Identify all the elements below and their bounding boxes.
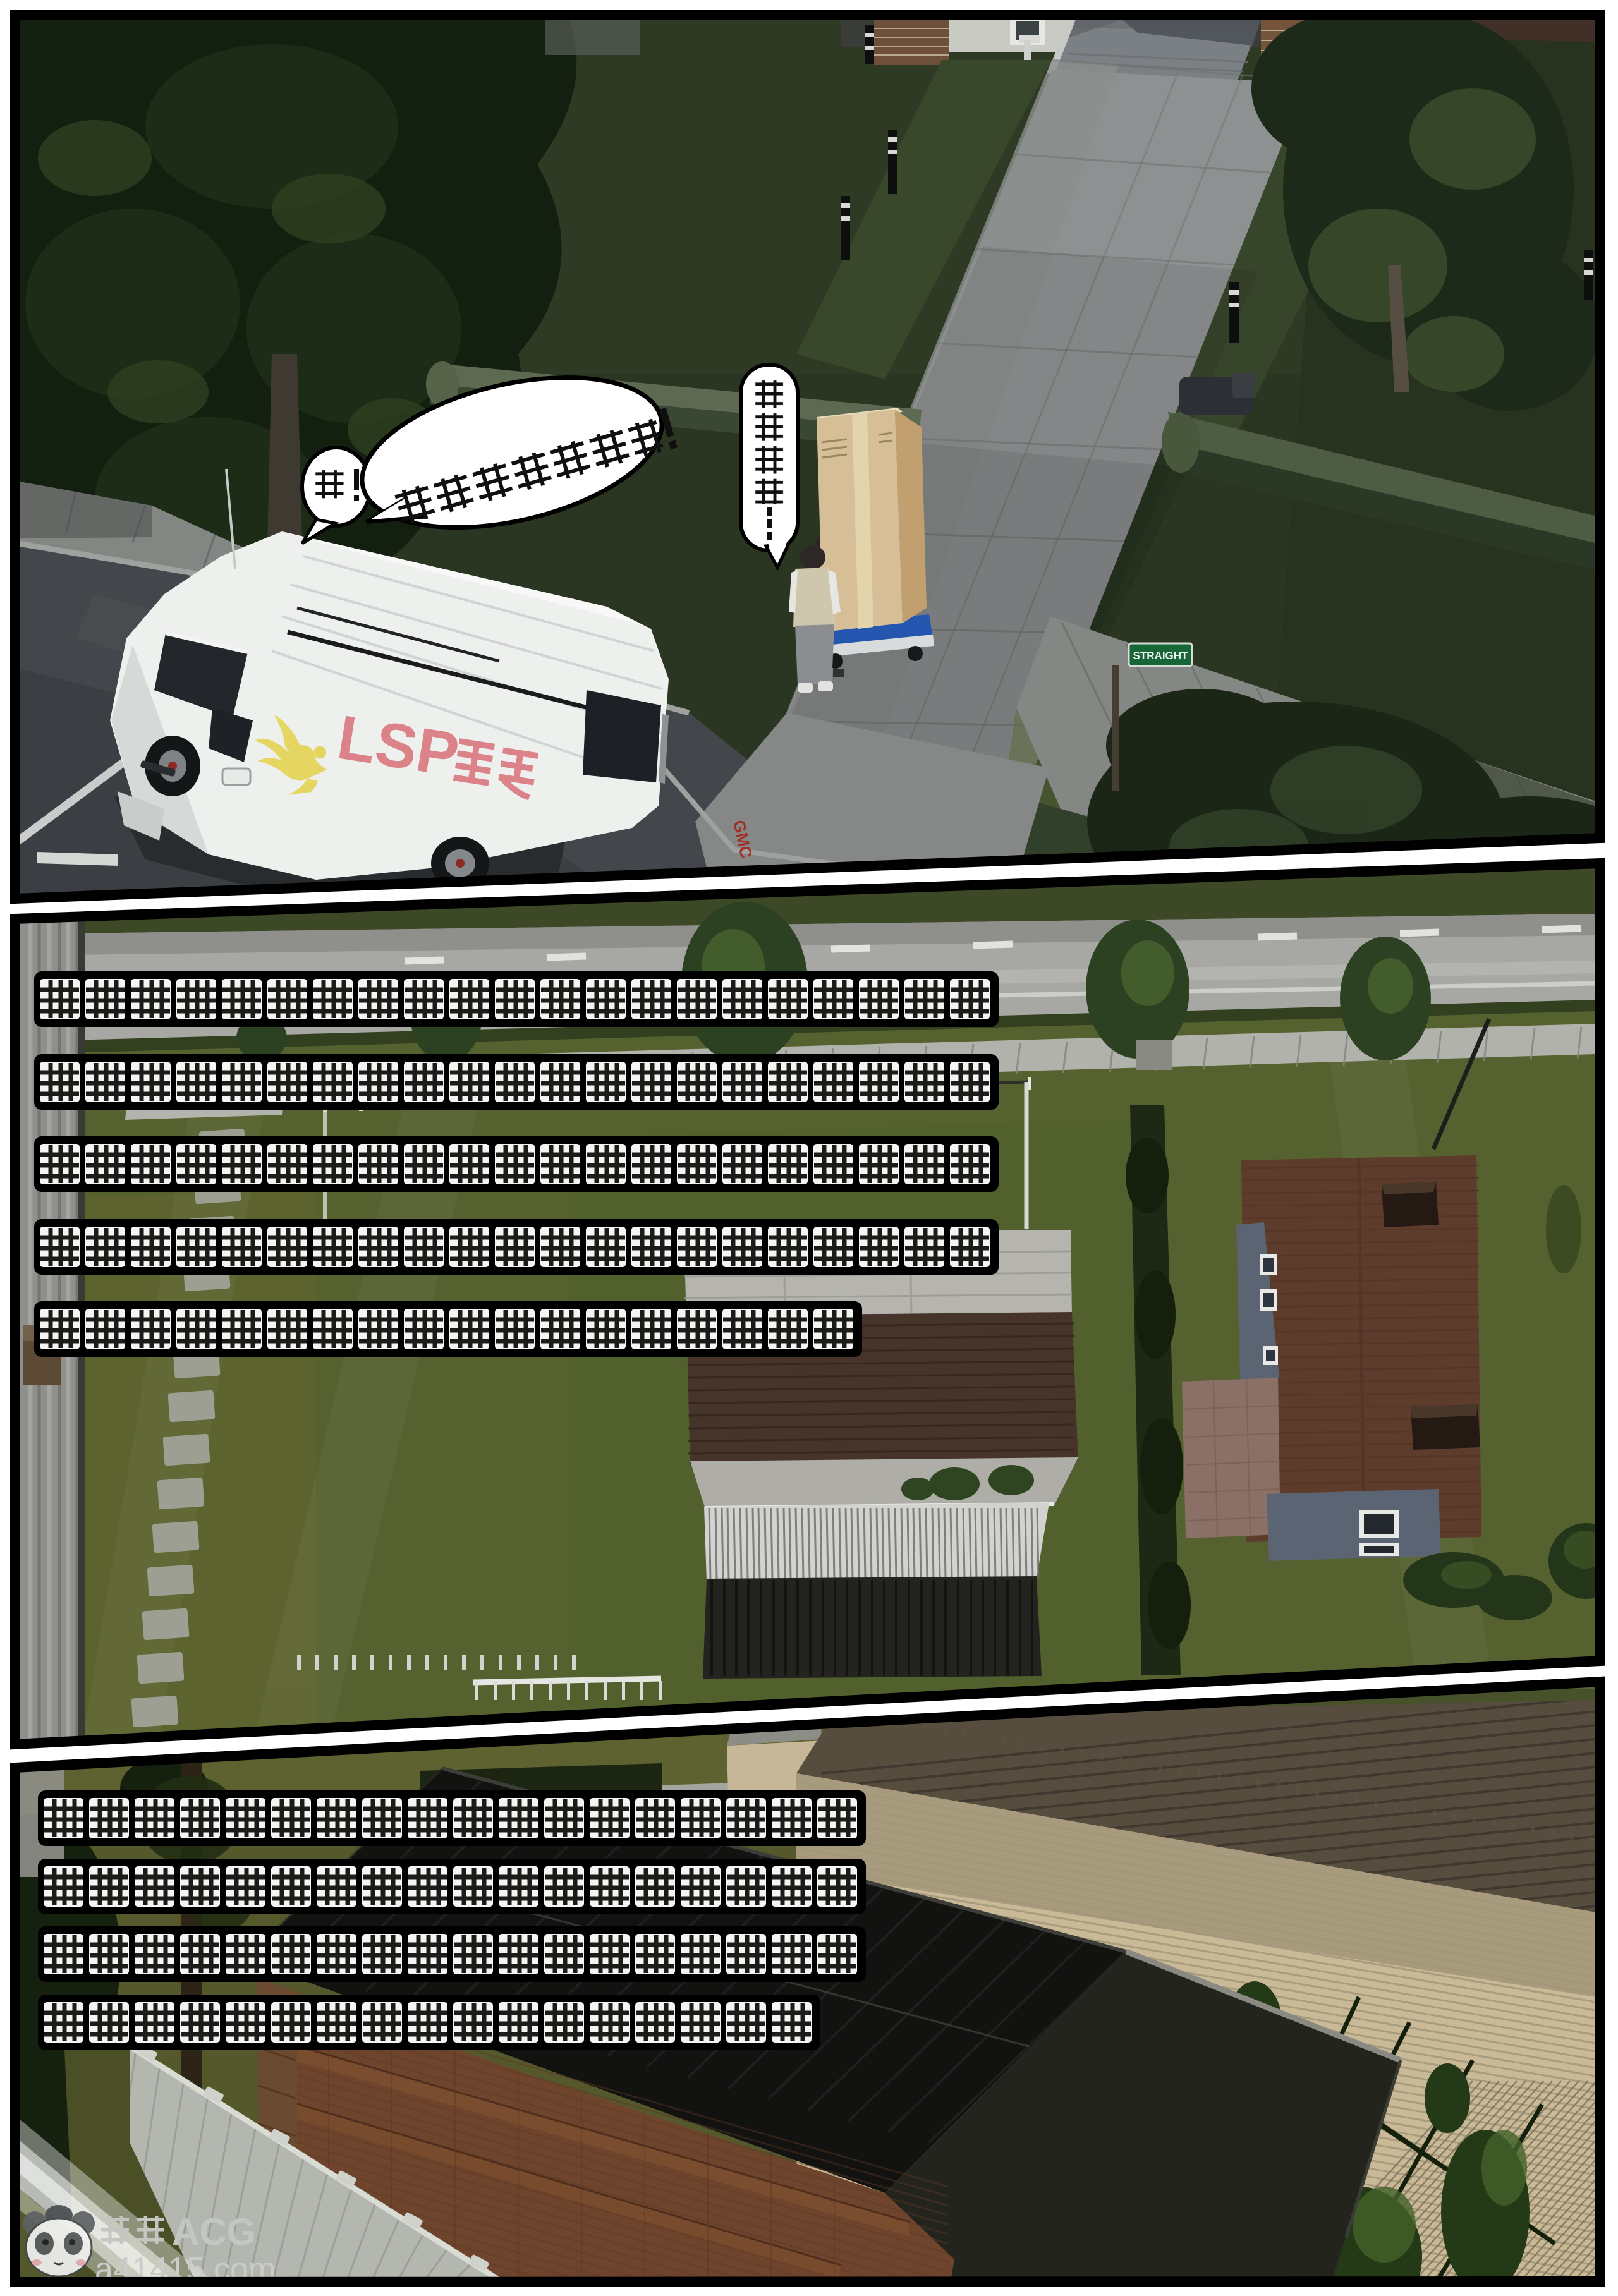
svg-text:ACG: ACG <box>172 2211 256 2253</box>
svg-text:STRAIGHT: STRAIGHT <box>1133 650 1189 662</box>
